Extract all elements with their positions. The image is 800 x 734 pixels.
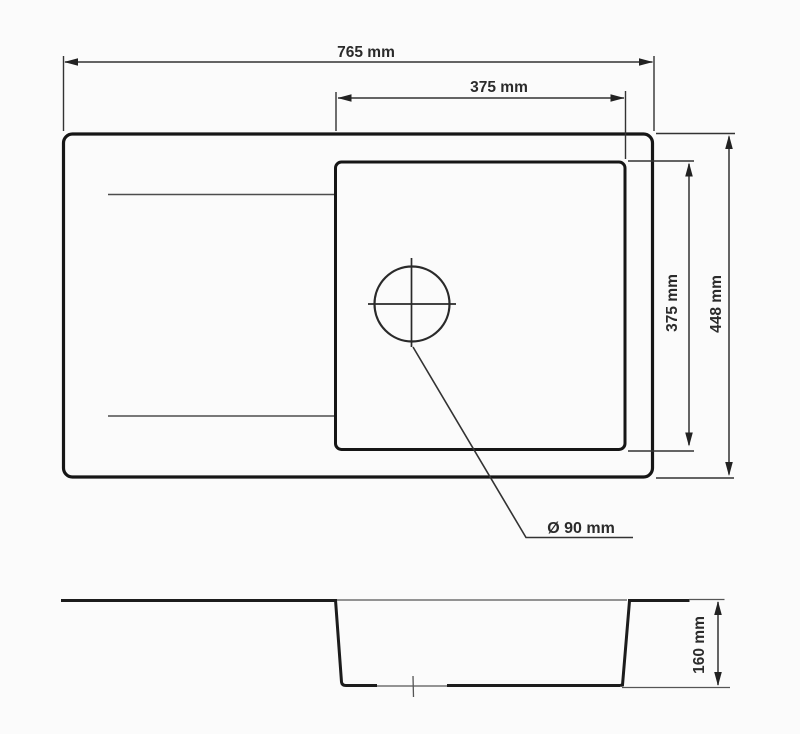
svg-text:765 mm: 765 mm — [337, 44, 395, 61]
svg-text:448 mm: 448 mm — [708, 275, 725, 333]
svg-text:160 mm: 160 mm — [691, 616, 708, 674]
svg-text:Ø 90 mm: Ø 90 mm — [547, 520, 615, 537]
svg-text:375 mm: 375 mm — [470, 79, 528, 96]
svg-text:375 mm: 375 mm — [664, 274, 681, 332]
